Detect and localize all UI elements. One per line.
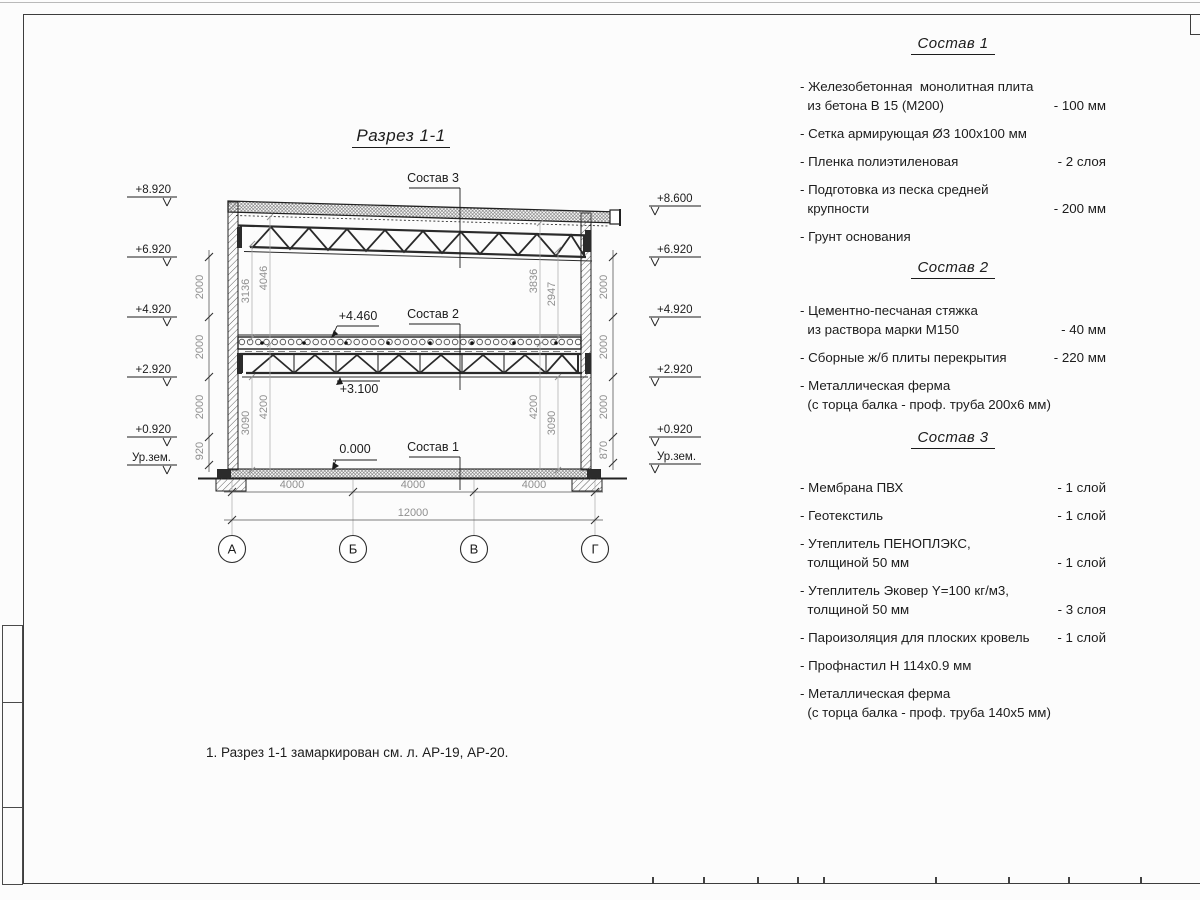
- svg-text:Г: Г: [591, 542, 598, 557]
- svg-text:0.000: 0.000: [339, 442, 370, 456]
- svg-text:Состав 2: Состав 2: [407, 307, 459, 321]
- list-item: - Сборные ж/б плиты перекрытия - 220 мм: [800, 348, 1106, 367]
- list-item: - Геотекстиль - 1 слой: [800, 506, 1106, 525]
- floor-truss: [237, 353, 591, 377]
- svg-text:4200: 4200: [258, 395, 270, 419]
- svg-text:3836: 3836: [528, 269, 540, 293]
- svg-text:+8.920: +8.920: [136, 184, 172, 196]
- list-item: - Утеплитель Эковер Y=100 кг/м3, толщино…: [800, 581, 1106, 619]
- list-item: - Сетка армирующая Ø3 100х100 мм: [800, 124, 1106, 143]
- svg-text:А: А: [228, 542, 237, 557]
- svg-text:3090: 3090: [546, 411, 558, 435]
- margin-box-1: [2, 625, 23, 703]
- roof-truss: [237, 226, 592, 262]
- list-item: - Железобетонная монолитная плита из бет…: [800, 77, 1106, 115]
- svg-text:Ур.зем.: Ур.зем.: [132, 452, 171, 464]
- level-mark-3100: +3.100: [336, 377, 380, 396]
- roof-slab: [228, 201, 620, 226]
- svg-text:2000: 2000: [598, 395, 610, 419]
- svg-text:+8.600: +8.600: [657, 193, 693, 205]
- drawing-title: Разрез 1-1: [326, 126, 476, 148]
- svg-text:12000: 12000: [398, 507, 429, 519]
- spec-3-heading: Состав 3: [800, 428, 1106, 449]
- svg-text:870: 870: [598, 441, 610, 459]
- svg-text:+4.460: +4.460: [339, 309, 378, 323]
- elevation-marks-right: +8.600 +6.920 +4.920 +2.920 +0.920 Ур.зе…: [649, 193, 701, 473]
- list-item: - Цементно-песчаная стяжка из раствора м…: [800, 301, 1106, 339]
- svg-text:2000: 2000: [194, 275, 206, 299]
- dim-chain-left: 2000 2000 2000 920: [194, 250, 213, 472]
- list-item: - Профнастил Н 114х0.9 мм: [800, 656, 1106, 675]
- sheet-top-edge: [0, 2, 1200, 3]
- list-item: - Грунт основания: [800, 227, 1106, 246]
- axis-bubbles: А Б В Г: [219, 536, 609, 563]
- svg-text:Состав 3: Состав 3: [407, 171, 459, 185]
- margin-box-3: [2, 807, 23, 885]
- svg-text:2000: 2000: [598, 335, 610, 359]
- svg-text:3136: 3136: [240, 279, 252, 303]
- list-item: - Пленка полиэтиленовая - 2 слоя: [800, 152, 1106, 171]
- level-mark-4460: +4.460: [331, 309, 379, 338]
- svg-text:2947: 2947: [546, 282, 558, 306]
- svg-text:+4.920: +4.920: [136, 304, 172, 316]
- svg-text:4000: 4000: [280, 479, 304, 491]
- svg-text:4200: 4200: [528, 395, 540, 419]
- list-item: - Металлическая ферма (с торца балка - п…: [800, 684, 1106, 722]
- margin-box-2: [2, 702, 23, 808]
- elevation-marks-left: +8.920 +6.920 +4.920 +2.920 +0.920 Ур.зе…: [127, 184, 177, 474]
- list-item: - Подготовка из песка средней крупности …: [800, 180, 1106, 218]
- dims-bottom: 4000 4000 4000 12000: [224, 479, 603, 536]
- svg-text:+6.920: +6.920: [136, 244, 172, 256]
- list-item: - Металлическая ферма (с торца балка - п…: [800, 376, 1106, 414]
- svg-text:3090: 3090: [240, 411, 252, 435]
- list-item: - Мембрана ПВХ - 1 слой: [800, 478, 1106, 497]
- section-drawing: Состав 3 Состав 2 Состав 1 +4.460 +3.100…: [120, 160, 720, 580]
- spec-sostav-2: Состав 2 - Цементно-песчаная стяжка из р…: [800, 258, 1106, 423]
- svg-text:+0.920: +0.920: [657, 424, 693, 436]
- svg-text:+4.920: +4.920: [657, 304, 693, 316]
- svg-text:4000: 4000: [522, 479, 546, 491]
- svg-text:+2.920: +2.920: [657, 364, 693, 376]
- dim-chain-right: 2000 2000 2000 870: [598, 250, 617, 470]
- sheet-note: 1. Разрез 1-1 замаркирован см. л. АР-19,…: [206, 745, 508, 760]
- svg-text:2000: 2000: [598, 275, 610, 299]
- spec-1-heading: Состав 1: [800, 34, 1106, 55]
- svg-text:В: В: [470, 542, 479, 557]
- list-item: - Пароизоляция для плоских кровель - 1 с…: [800, 628, 1106, 647]
- floor-slab: [238, 335, 581, 352]
- spec-sostav-3: Состав 3 - Мембрана ПВХ - 1 слой - Геоте…: [800, 428, 1106, 731]
- svg-text:2000: 2000: [194, 335, 206, 359]
- svg-text:+6.920: +6.920: [657, 244, 693, 256]
- sheet-corner-box: [1190, 14, 1200, 35]
- svg-text:Ур.зем.: Ур.зем.: [657, 451, 696, 463]
- spec-2-heading: Состав 2: [800, 258, 1106, 279]
- spec-sostav-1: Состав 1 - Железобетонная монолитная пли…: [800, 34, 1106, 255]
- svg-text:920: 920: [194, 442, 206, 460]
- svg-text:4046: 4046: [258, 266, 270, 290]
- svg-text:+3.100: +3.100: [340, 382, 379, 396]
- svg-text:2000: 2000: [194, 395, 206, 419]
- wall-left: [228, 202, 238, 470]
- list-item: - Утеплитель ПЕНОПЛЭКС, толщиной 50 мм -…: [800, 534, 1106, 572]
- svg-text:Б: Б: [349, 542, 358, 557]
- svg-text:4000: 4000: [401, 479, 425, 491]
- level-mark-0000: 0.000: [332, 442, 377, 470]
- svg-text:+0.920: +0.920: [136, 424, 172, 436]
- svg-text:Состав 1: Состав 1: [407, 440, 459, 454]
- drawing-title-text: Разрез 1-1: [352, 126, 449, 148]
- svg-text:+2.920: +2.920: [136, 364, 172, 376]
